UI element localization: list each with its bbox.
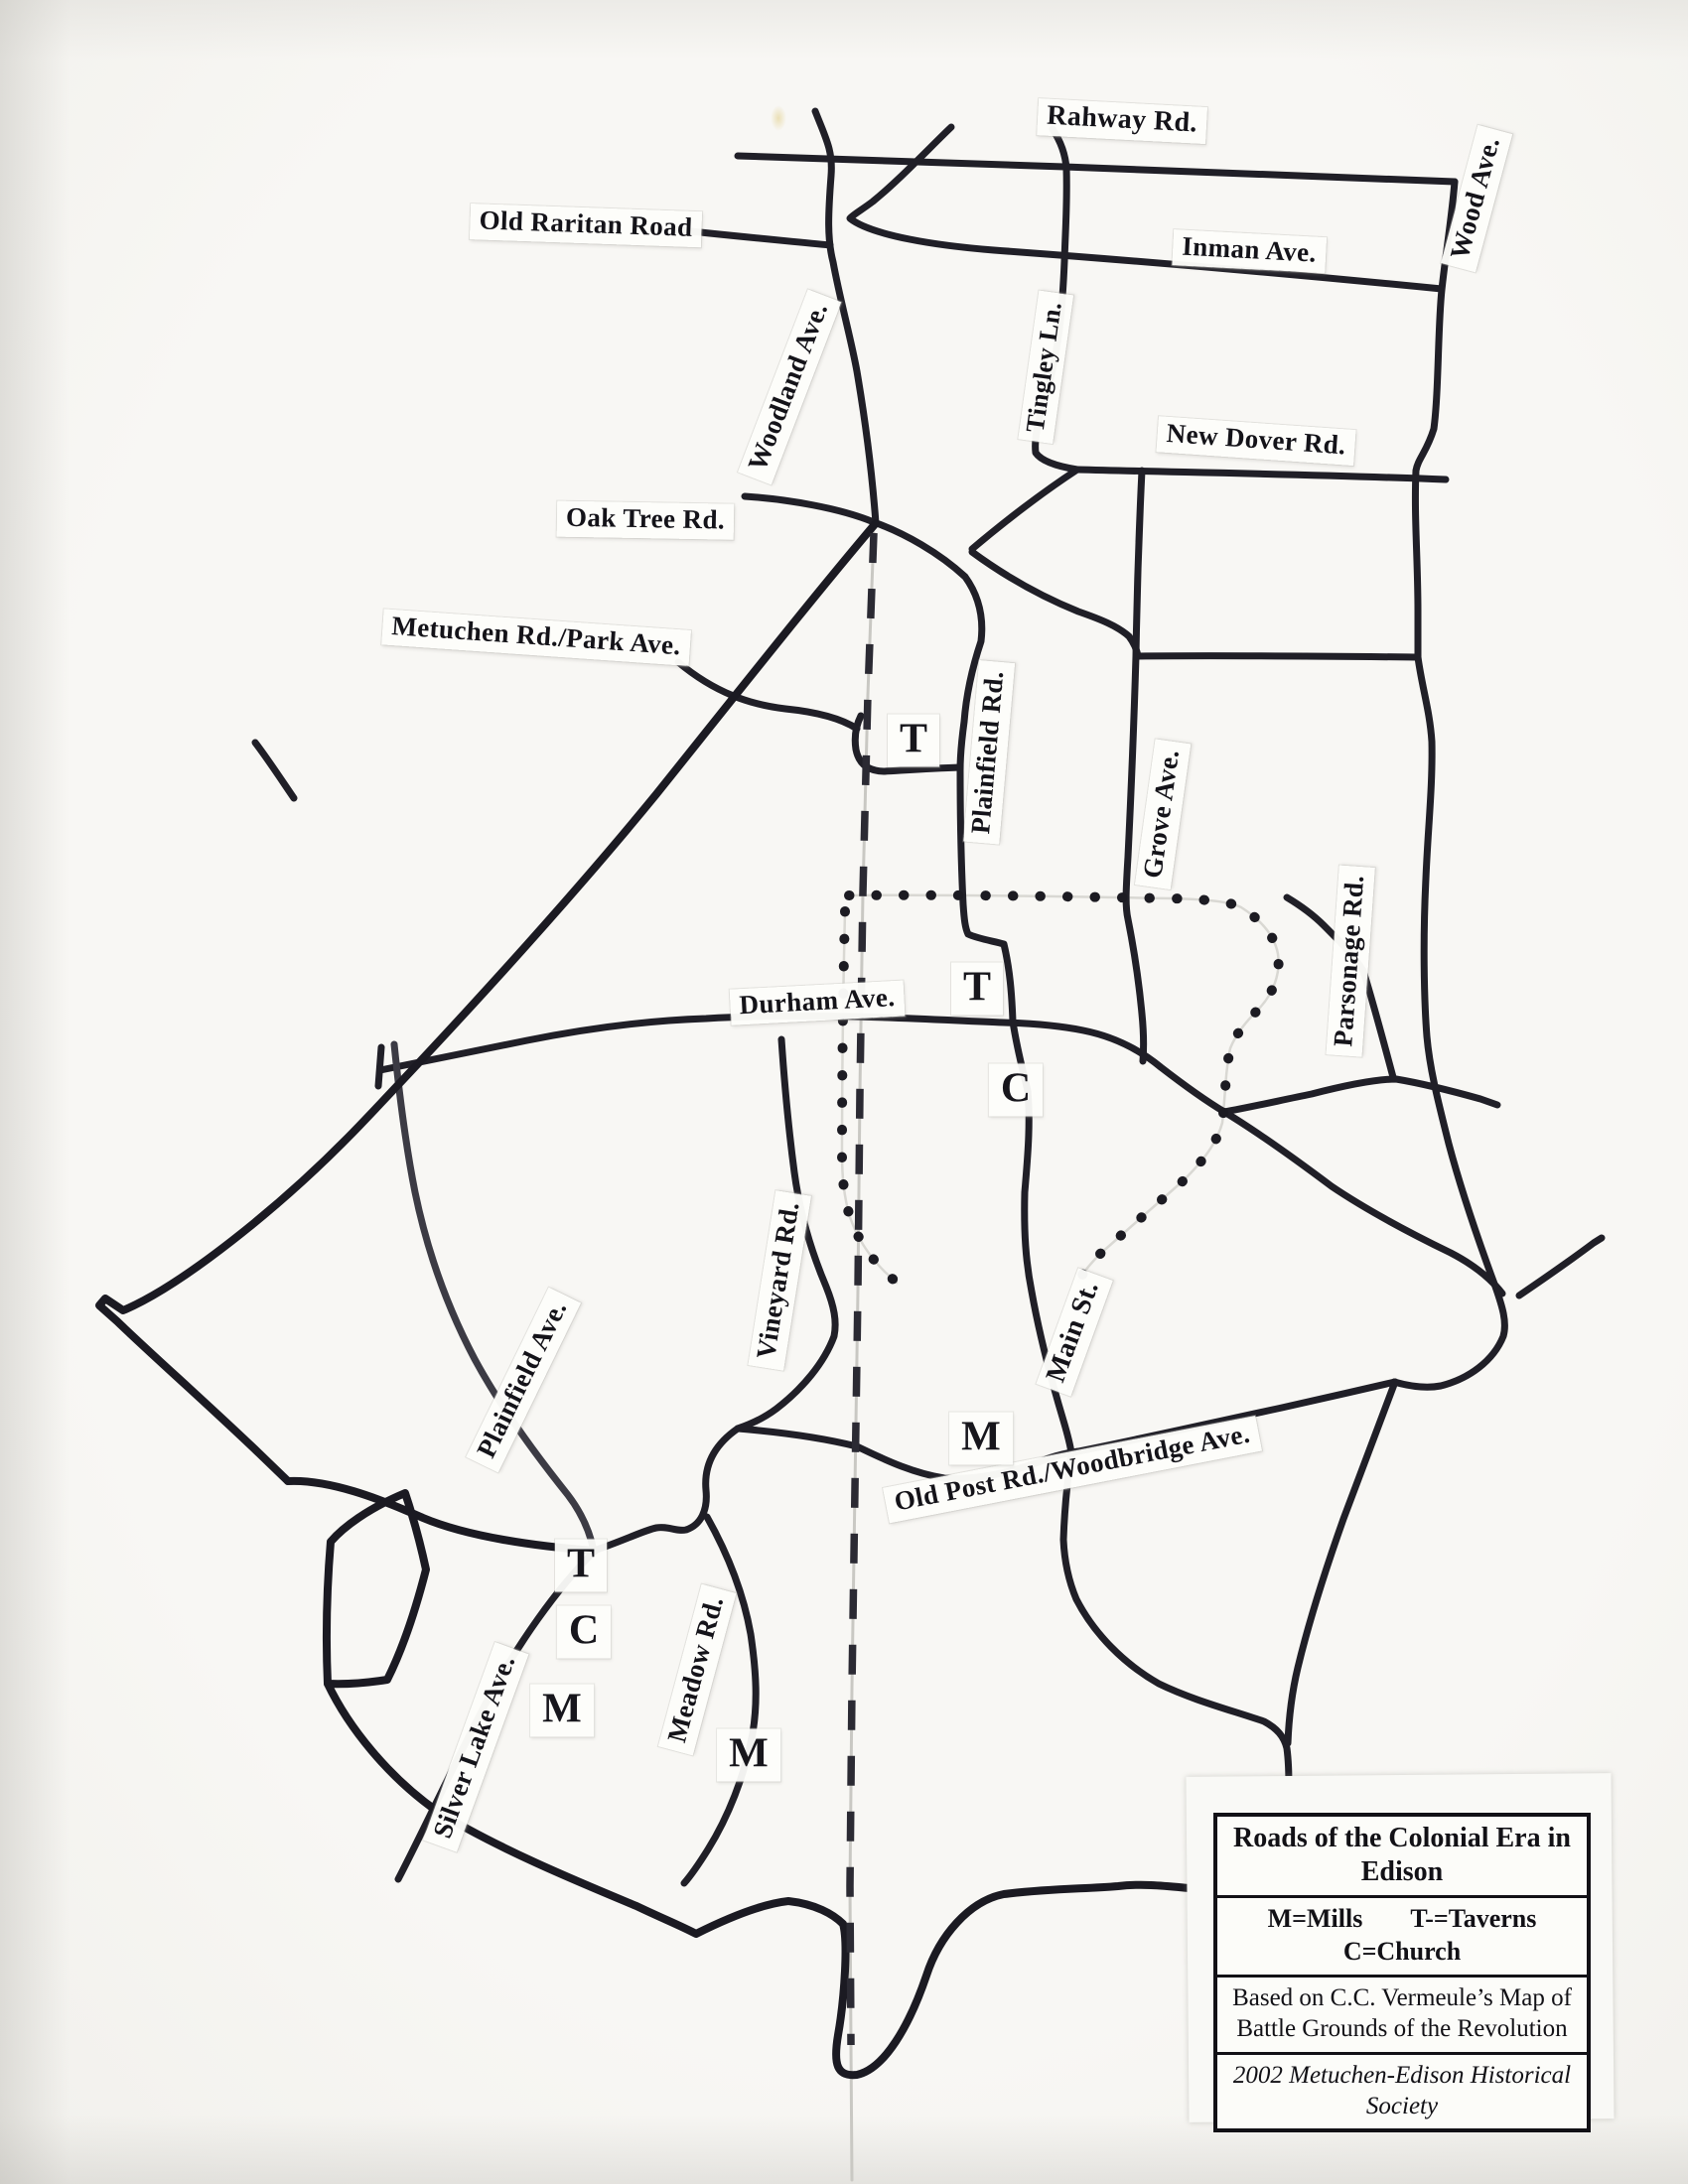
legend-source-line2: Battle Grounds of the Revolution [1236, 2015, 1567, 2042]
road-durham-ave [380, 1016, 1224, 1112]
road-east-branch-lower [1224, 1112, 1502, 1294]
road-east-branch-upper [1224, 1079, 1497, 1112]
marker-c-6: C [557, 1606, 611, 1659]
marker-m-8: M [717, 1729, 780, 1782]
silver-lake-pond [327, 1493, 426, 1684]
road-new-dover-spur [972, 470, 1077, 549]
marker-t-5: T [555, 1540, 607, 1592]
road-northeast-stub [1519, 1238, 1602, 1296]
road-durham-end-tick [378, 1047, 381, 1086]
legend-title: Roads of the Colonial Era in Edison [1217, 1817, 1587, 1895]
road-label-oak-tree-rd: Oak Tree Rd. [557, 501, 735, 540]
map-legend: Roads of the Colonial Era in Edison M=Mi… [1213, 1813, 1591, 2132]
marker-c-3: C [989, 1064, 1043, 1117]
road-new-dover-rd [1077, 470, 1446, 479]
trail-guide-line-1 [849, 895, 1279, 1282]
legend-key-line1: M=Mills T-=Taverns [1221, 1903, 1583, 1936]
legend-credit-line1: 2002 Metuchen-Edison Historical [1233, 2062, 1571, 2089]
legend-key-taverns: T-=Taverns [1410, 1903, 1536, 1936]
dotted-trail-rail-side [842, 911, 897, 1283]
marker-t-2: T [951, 963, 1003, 1016]
legend-title-line2: Edison [1361, 1856, 1444, 1887]
road-mid-connector [972, 552, 1418, 657]
legend-key-church: C=Church [1221, 1936, 1583, 1969]
legend-title-line1: Roads of the Colonial Era in [1233, 1823, 1571, 1853]
road-metuchen-park-ave [678, 662, 857, 729]
legend-credit: 2002 Metuchen-Edison Historical Society [1217, 2052, 1587, 2129]
road-rahway-rd [738, 156, 1455, 182]
marker-t-1: T [888, 715, 939, 767]
legend-source: Based on C.C. Vermeule’s Map of Battle G… [1217, 1975, 1587, 2052]
road-left-stub [255, 743, 294, 798]
legend-key: M=Mills T-=Taverns C=Church [1217, 1895, 1587, 1975]
trail-guide-line-2 [842, 911, 897, 1283]
road-inman-ave [850, 127, 1442, 289]
marker-m-4: M [949, 1413, 1013, 1465]
marker-m-7: M [530, 1685, 594, 1737]
legend-key-mills: M=Mills [1268, 1903, 1363, 1936]
road-grove-ave [1126, 471, 1144, 1061]
scanned-map-page: Rahway Rd.Old Raritan RoadInman Ave.Wood… [0, 0, 1688, 2184]
legend-credit-line2: Society [1366, 2093, 1438, 2119]
road-to-legend [1288, 1382, 1395, 1743]
road-wood-ave [1394, 182, 1504, 1387]
legend-source-line1: Based on C.C. Vermeule’s Map of [1232, 1984, 1572, 2011]
dotted-trail-loop [849, 895, 1279, 1282]
road-oak-tree-plainfield-main-st [745, 496, 1289, 1795]
